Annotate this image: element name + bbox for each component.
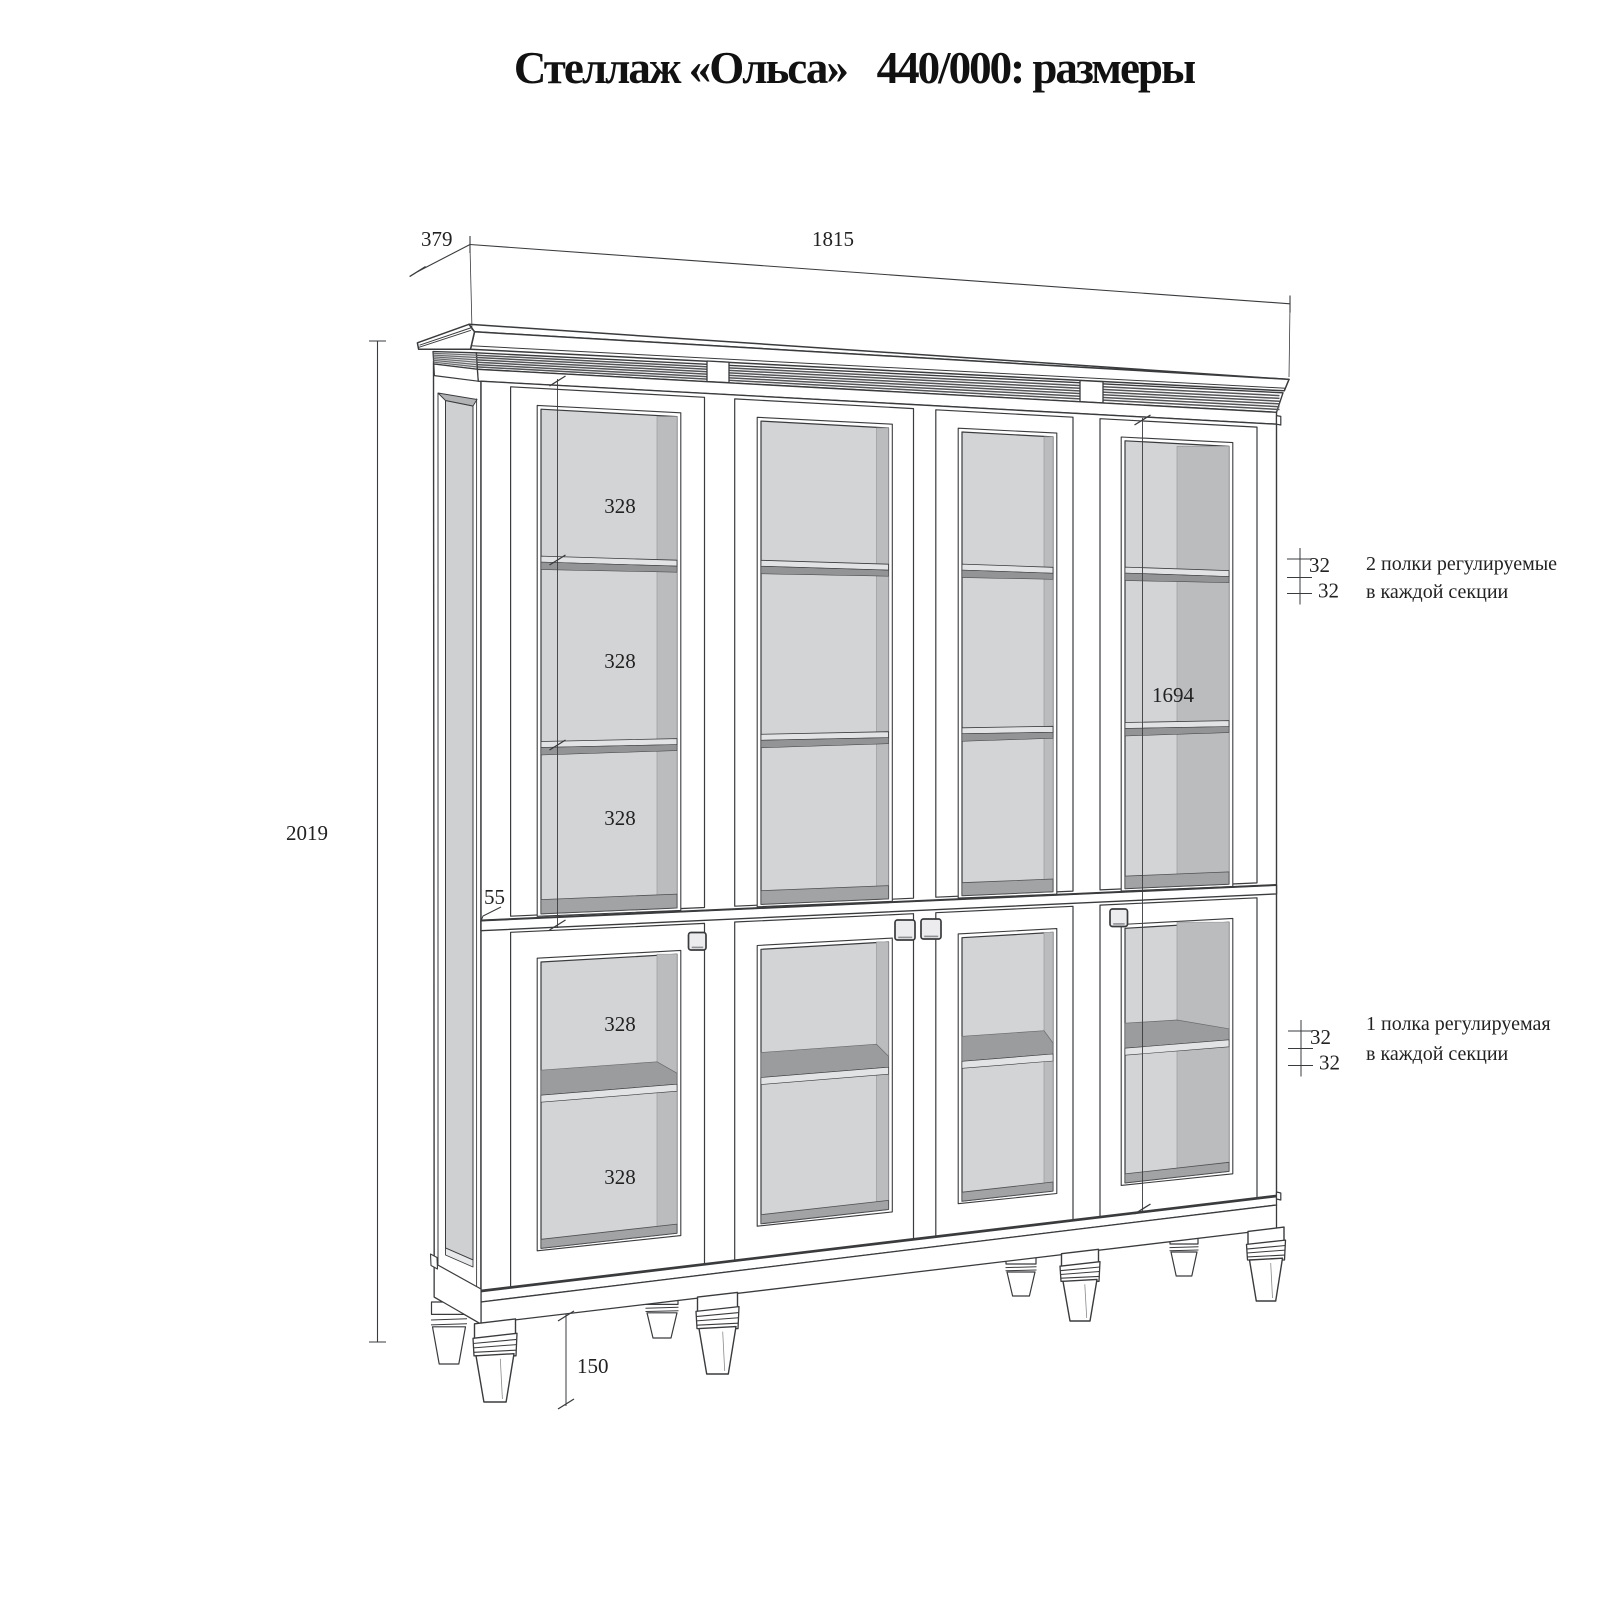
svg-text:150: 150 <box>577 1354 609 1378</box>
svg-text:32: 32 <box>1319 1051 1340 1075</box>
svg-text:32: 32 <box>1310 1025 1331 1049</box>
svg-text:1815: 1815 <box>812 227 854 251</box>
svg-text:328: 328 <box>604 806 636 830</box>
svg-text:2 полки регулируемые: 2 полки регулируемые <box>1366 553 1557 575</box>
svg-text:32: 32 <box>1318 579 1339 603</box>
svg-text:1 полка регулируемая: 1 полка регулируемая <box>1366 1013 1551 1035</box>
svg-text:328: 328 <box>604 649 636 673</box>
svg-text:328: 328 <box>604 1012 636 1036</box>
svg-text:328: 328 <box>604 1165 636 1189</box>
svg-text:Стеллаж «Ольса» 440/000: разм: Стеллаж «Ольса» 440/000: размеры <box>514 43 1195 93</box>
svg-text:328: 328 <box>604 494 636 518</box>
svg-text:в каждой секции: в каждой секции <box>1366 581 1509 603</box>
svg-text:в каждой секции: в каждой секции <box>1366 1043 1509 1065</box>
svg-text:379: 379 <box>421 227 453 251</box>
svg-text:32: 32 <box>1309 553 1330 577</box>
svg-text:55: 55 <box>484 885 505 909</box>
svg-text:2019: 2019 <box>286 821 328 845</box>
svg-text:1694: 1694 <box>1152 683 1195 707</box>
